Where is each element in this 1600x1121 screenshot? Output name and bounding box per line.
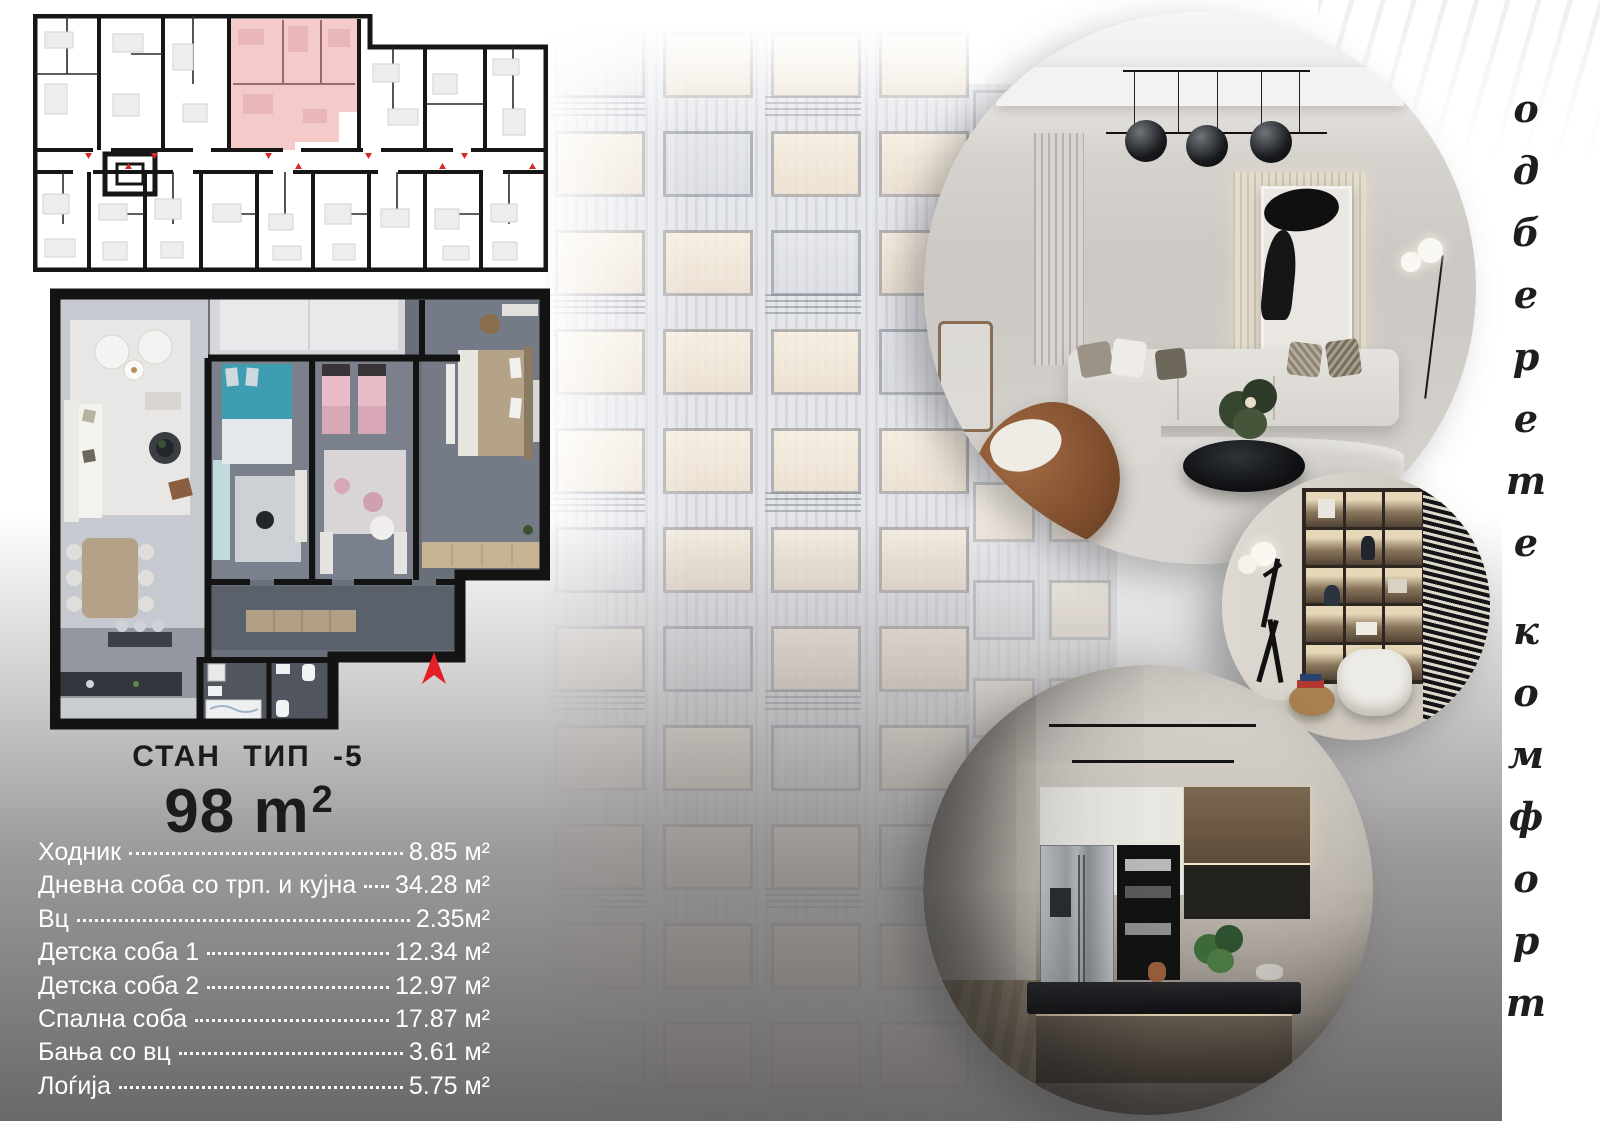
shelf-vase	[1318, 499, 1334, 518]
photo-kitchen	[923, 665, 1373, 1115]
room-area-value: 17.87 м²	[395, 1005, 490, 1034]
table-plant	[1211, 371, 1288, 448]
pendant-shade	[1125, 120, 1167, 162]
room-area-row: Детска соба 1 12.34 м²	[38, 938, 490, 971]
room-area-row: Дневна соба со трп. и кујна 34.28 м²	[38, 871, 490, 904]
pendant-wire	[1299, 70, 1300, 132]
shelf-box	[1356, 622, 1377, 635]
tagline-word-2: комфорт	[1504, 608, 1549, 1042]
room-area-row: Бања со вц 3.61 м²	[38, 1038, 490, 1071]
room-name: Бања со вц	[38, 1038, 171, 1067]
brochure-page: СТАН ТИП -5 98 m2 Ходник 8.85 м² Дневна …	[0, 0, 1600, 1121]
room-name: Детска соба 2	[38, 972, 199, 1001]
room-name: Детска соба 1	[38, 938, 199, 967]
dotted-leader	[77, 919, 410, 922]
plan-loggia	[210, 293, 405, 357]
shelf-bottle	[1361, 536, 1374, 560]
plan-corridor	[212, 586, 458, 650]
dotted-leader	[179, 1052, 403, 1055]
figure-silhouette	[1259, 230, 1299, 320]
ceiling-recess	[996, 67, 1405, 106]
room-area-value: 12.34 м²	[395, 938, 490, 967]
plan-bedroom-1	[212, 360, 310, 580]
room-area-row: Детска соба 2 12.97 м²	[38, 972, 490, 1005]
pillow	[1109, 338, 1147, 378]
pendant-wire	[1217, 70, 1218, 132]
dotted-leader	[129, 852, 403, 855]
pendant-shade	[1186, 125, 1228, 167]
room-name: Спална соба	[38, 1005, 187, 1034]
apartment-type-title: СТАН ТИП -5	[78, 740, 418, 774]
dotted-leader	[119, 1086, 403, 1089]
plan-living-room	[60, 298, 208, 722]
pillow	[1325, 338, 1363, 378]
apartment-total-area: 98 m2	[78, 776, 418, 847]
area-number: 98 m	[164, 777, 309, 846]
room-area-value: 34.28 м²	[395, 871, 490, 900]
room-area-value: 8.85 м²	[409, 838, 490, 867]
shelf-books	[1388, 579, 1407, 592]
pillow	[1286, 341, 1323, 378]
wall-slats-left	[1034, 133, 1084, 365]
fashion-portrait-art	[1261, 186, 1353, 352]
venetian-blinds	[1423, 472, 1490, 740]
vertical-tagline: одберете комфорт	[1500, 86, 1552, 1042]
apartment-floor-plan	[50, 280, 550, 730]
room-areas-list: Ходник 8.85 м² Дневна соба со трп. и куј…	[38, 838, 490, 1105]
pendant-wire	[1178, 70, 1179, 132]
dotted-leader	[364, 885, 389, 888]
shelf-vase-dark	[1324, 585, 1340, 606]
room-area-row: Лоѓија 5.75 м²	[38, 1072, 490, 1105]
room-name: Лоѓија	[38, 1072, 111, 1101]
tagline-word-1: одберете	[1504, 86, 1549, 582]
floor-lamp-globe	[1401, 252, 1421, 272]
building-floor-plan-overview	[33, 14, 548, 272]
dotted-leader	[195, 1019, 389, 1022]
room-area-row: Ходник 8.85 м²	[38, 838, 490, 871]
pillow	[1076, 341, 1114, 379]
pillow	[1154, 347, 1187, 380]
plan-bathrooms	[202, 660, 330, 721]
room-area-row: Спална соба 17.87 м²	[38, 1005, 490, 1038]
room-area-value: 12.97 м²	[395, 972, 490, 1001]
room-area-value: 2.35м²	[416, 905, 490, 934]
title-block: СТАН ТИП -5 98 m2	[78, 740, 418, 847]
room-area-value: 5.75 м²	[409, 1072, 490, 1101]
dotted-leader	[207, 986, 389, 989]
room-area-row: Вц 2.35м²	[38, 905, 490, 938]
floor-lamp-globe	[1418, 238, 1443, 263]
plan-kids-room	[316, 360, 416, 580]
dotted-leader	[207, 952, 389, 955]
room-name: Вц	[38, 905, 69, 934]
room-area-value: 3.61 м²	[409, 1038, 490, 1067]
wooden-chair	[938, 321, 994, 432]
pendant-shade	[1250, 121, 1292, 163]
circle-shadow-rim	[923, 665, 1373, 1115]
black-hat	[1261, 184, 1341, 234]
area-superscript: 2	[312, 779, 334, 821]
globe-lamp-small	[1238, 555, 1257, 574]
room-name: Дневна соба со трп. и кујна	[38, 871, 356, 900]
plan-master-bedroom	[422, 300, 540, 568]
room-name: Ходник	[38, 838, 121, 867]
